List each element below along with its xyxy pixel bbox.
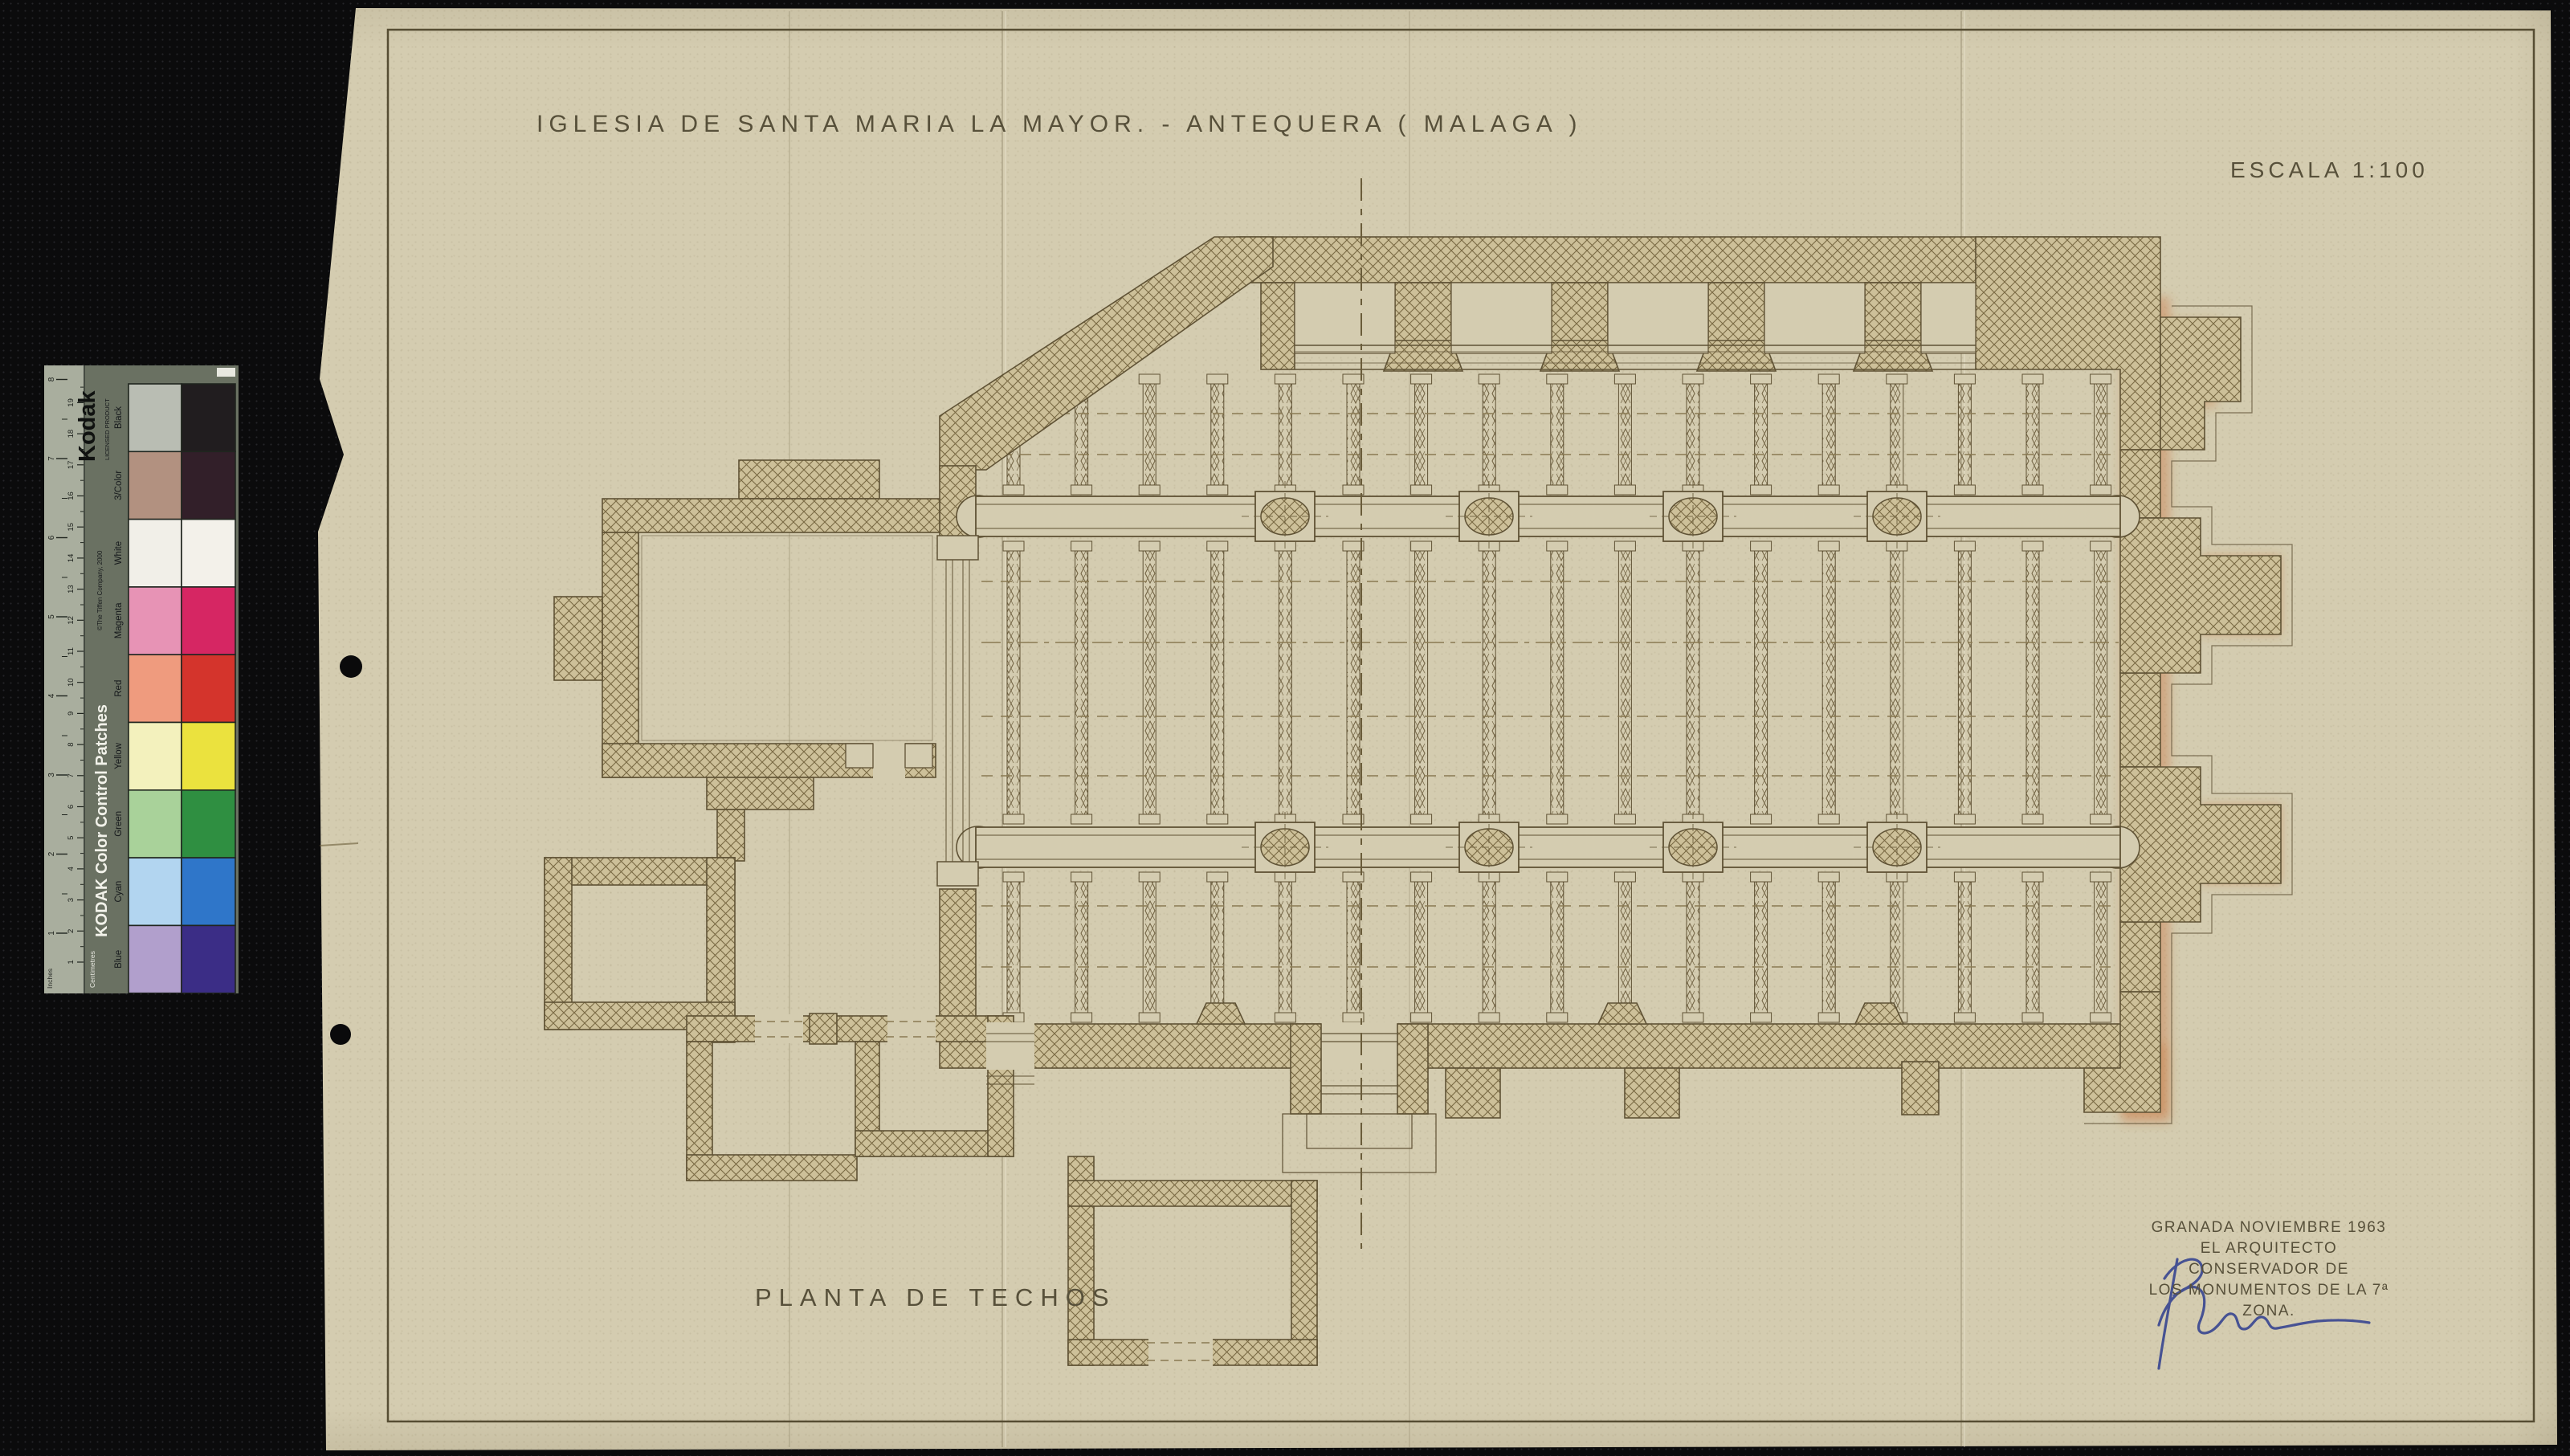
joist (1483, 882, 1495, 1013)
patch-tint-Red (128, 655, 182, 722)
northeast-corner (1976, 237, 2160, 450)
kodak-logo: Kodak (75, 390, 100, 463)
cm-number: 11 (67, 647, 75, 655)
cm-number: 1 (67, 960, 75, 964)
joist (1143, 882, 1156, 1013)
joist (1279, 384, 1291, 485)
cm-number: 15 (67, 523, 75, 532)
joist (1279, 551, 1291, 814)
chapel-inner-face (642, 536, 932, 740)
west-wall-lower (940, 889, 976, 1024)
joist (1279, 882, 1291, 1013)
joist (1483, 384, 1495, 485)
patch-solid-Magenta (182, 587, 235, 655)
joist (1483, 551, 1495, 814)
inch-number: 4 (47, 693, 56, 698)
joist (1143, 551, 1156, 814)
strip-corner-notch (217, 368, 235, 377)
patch-tint-Blue (128, 925, 182, 993)
joist (1687, 551, 1699, 814)
patch-label: Magenta (114, 602, 124, 638)
cm-number: 13 (67, 585, 75, 593)
inch-number: 2 (47, 851, 56, 856)
joist (1891, 551, 1903, 814)
centimetres-label: Centimetres (88, 951, 96, 988)
patch-tint-Green (128, 790, 182, 858)
joist (1891, 384, 1903, 485)
inch-number: 3 (47, 773, 56, 777)
color-patches: Black3/ColorWhiteMagentaRedYellowGreenCy… (114, 384, 235, 993)
sheet-title: IGLESIA DE SANTA MARIA LA MAYOR. - ANTEQ… (536, 111, 1582, 138)
cm-number: 4 (67, 867, 75, 871)
joist (1618, 384, 1631, 485)
joist (1755, 551, 1768, 814)
patch-label: Cyan (114, 881, 124, 903)
masonry-walls (545, 237, 2281, 1365)
patch-solid-Yellow (182, 723, 235, 790)
joist (1347, 882, 1360, 1013)
patch-tint-3/Color (128, 451, 182, 519)
joist (2095, 384, 2107, 485)
joist (1891, 882, 1903, 1013)
patch-tint-Yellow (128, 723, 182, 790)
joist (1958, 384, 1971, 485)
joist (1755, 384, 1768, 485)
cm-number: 16 (67, 491, 75, 500)
inch-number: 5 (47, 614, 56, 619)
credit-date: GRANADA NOVIEMBRE 1963 (2140, 1217, 2397, 1238)
scale-label: ESCALA 1:100 (2230, 157, 2429, 183)
buttress-ne (2160, 317, 2241, 450)
joist (1958, 551, 1971, 814)
joist (1415, 551, 1428, 814)
joist (2095, 882, 2107, 1013)
patch-solid-Cyan (182, 858, 235, 925)
punch-hole-2 (330, 1024, 351, 1045)
patch-label: Blue (114, 950, 124, 969)
inch-number: 6 (47, 535, 56, 540)
patch-solid-Black (182, 384, 235, 451)
joist (1551, 882, 1564, 1013)
joist (1007, 882, 1020, 1013)
joist (1822, 384, 1835, 485)
patch-label: Red (114, 680, 124, 697)
cm-number: 8 (67, 742, 75, 746)
buttress-east-2 (2120, 767, 2281, 922)
licensed-product-label: LICENSED PRODUCT (104, 398, 111, 460)
joist (1075, 551, 1088, 814)
joist (1415, 882, 1428, 1013)
joist (1551, 384, 1564, 485)
kodak-color-strip: Kodak LICENSED PRODUCT ©The Tiffen Compa… (44, 365, 239, 993)
patch-tint-Magenta (128, 587, 182, 655)
patch-label: Green (114, 811, 124, 837)
buttress-east-1 (2120, 518, 2281, 673)
joist (2095, 551, 2107, 814)
cm-number: 5 (67, 836, 75, 840)
patch-solid-3/Color (182, 451, 235, 519)
patch-tint-Black (128, 384, 182, 451)
joist (1211, 384, 1224, 485)
ceiling-joists (1003, 374, 2111, 1022)
joist (1143, 384, 1156, 485)
strip-title: KODAK Color Control Patches (93, 704, 111, 937)
joist (2026, 384, 2039, 485)
joist (1958, 882, 1971, 1013)
inches-label: Inches (46, 969, 54, 989)
copyright-label: ©The Tiffen Company, 2000 (96, 550, 104, 630)
patch-solid-White (182, 520, 235, 587)
joist (1211, 882, 1224, 1013)
paper-folds (789, 11, 1964, 1447)
cm-number: 12 (67, 616, 75, 625)
chapel-west-wall (602, 532, 638, 777)
cm-number: 10 (67, 678, 75, 687)
patch-label: White (114, 541, 124, 565)
joist (1347, 551, 1360, 814)
cm-number: 19 (67, 398, 75, 407)
chapel-north-wall (602, 499, 940, 532)
joist (1551, 551, 1564, 814)
joist (1007, 551, 1020, 814)
cm-number: 17 (67, 461, 75, 470)
cm-number: 9 (67, 712, 75, 716)
patch-label: 3/Color (114, 471, 124, 500)
patch-tint-Cyan (128, 858, 182, 925)
joist (1415, 384, 1428, 485)
punch-hole-1 (340, 655, 362, 678)
joist (1687, 384, 1699, 485)
patch-label: Yellow (114, 742, 124, 769)
south-wall (940, 1024, 2160, 1068)
title-block: GRANADA NOVIEMBRE 1963 EL ARQUITECTO CON… (2140, 1217, 2397, 1322)
joist (1822, 882, 1835, 1013)
plan-label: PLANTA DE TECHOS (755, 1283, 1116, 1312)
cm-number: 3 (67, 898, 75, 902)
patch-solid-Red (182, 655, 235, 722)
joist (1755, 882, 1768, 1013)
joist (1075, 882, 1088, 1013)
inch-number: 1 (47, 931, 56, 936)
pencil-mark (320, 843, 358, 846)
patch-solid-Blue (182, 925, 235, 993)
joist (2026, 551, 2039, 814)
joist (1822, 551, 1835, 814)
scanned-sheet: IGLESIA DE SANTA MARIA LA MAYOR. - ANTEQ… (0, 0, 2570, 1456)
joist (1347, 384, 1360, 485)
joist (1618, 551, 1631, 814)
chapel-north-buttress (739, 460, 879, 499)
credit-role-2: LOS MONUMENTOS DE LA 7ª ZONA. (2140, 1280, 2397, 1322)
joist (1211, 551, 1224, 814)
patch-solid-Green (182, 790, 235, 858)
joist (2026, 882, 2039, 1013)
cm-number: 2 (67, 929, 75, 933)
cm-number: 6 (67, 805, 75, 809)
cm-number: 14 (67, 554, 75, 563)
joist (1618, 882, 1631, 1013)
joist (1687, 882, 1699, 1013)
inch-number: 7 (47, 456, 56, 461)
patch-label: Black (114, 406, 124, 429)
cm-number: 18 (67, 430, 75, 438)
cm-number: 7 (67, 773, 75, 777)
patch-tint-White (128, 520, 182, 587)
inch-number: 8 (47, 377, 56, 381)
chapel-west-buttress (554, 597, 602, 680)
credit-role-1: EL ARQUITECTO CONSERVADOR DE (2140, 1238, 2397, 1280)
